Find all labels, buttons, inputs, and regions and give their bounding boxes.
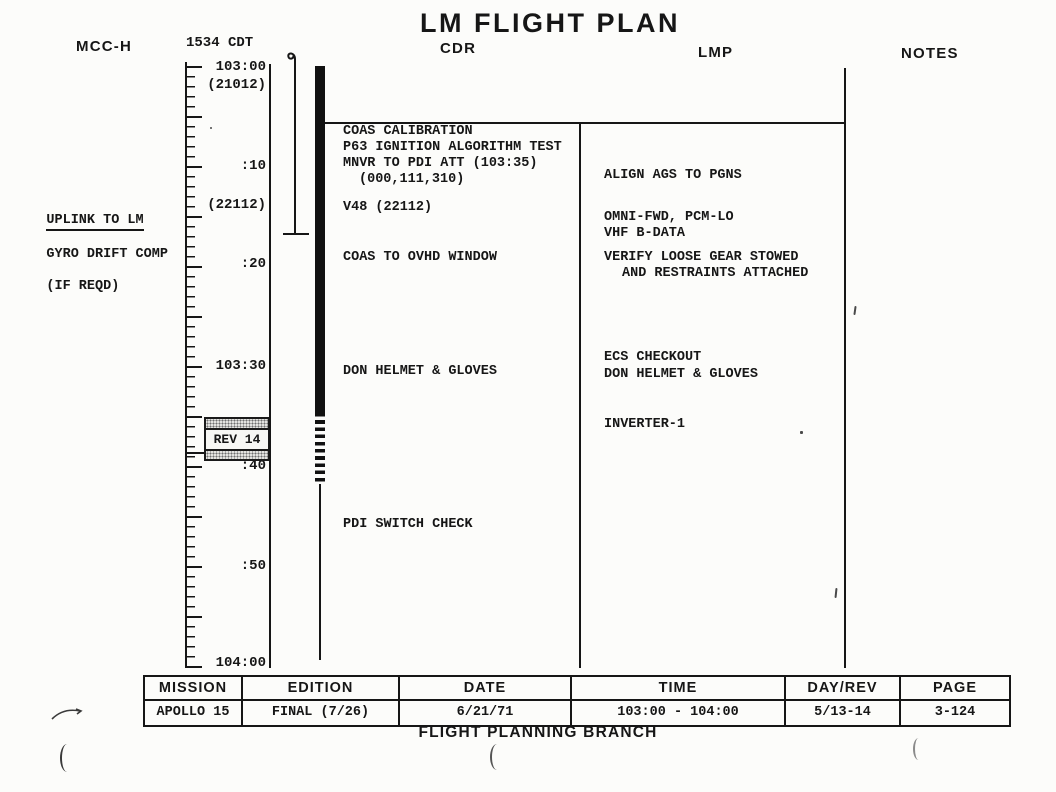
uplink-bracket-end: [283, 233, 309, 235]
lmp-activity: VHF B-DATA: [604, 226, 685, 242]
time-label-10330: 103:30: [166, 358, 266, 374]
flight-plan-page: LM FLIGHT PLAN MCC-H 1534 CDT CDR LMP NO…: [0, 0, 1056, 792]
scan-paren-mark: [913, 738, 924, 760]
cdr-activity: DON HELMET & GLOVES: [343, 364, 497, 380]
value-time: 103:00 - 104:00: [571, 700, 785, 726]
uplink-bracket-line: [294, 68, 296, 235]
activity-bar-solid: [315, 66, 325, 413]
cdr-activity: COAS CALIBRATION: [343, 124, 473, 140]
value-mission: APOLLO 15: [144, 700, 242, 726]
cdr-activity: PDI SWITCH CHECK: [343, 517, 473, 533]
time-label-21012: (21012): [166, 77, 266, 93]
lmp-activity: ALIGN AGS TO PGNS: [604, 168, 742, 184]
value-edition: FINAL (7/26): [242, 700, 399, 726]
activity-bar-dashed: [315, 413, 325, 484]
scan-speck: [853, 306, 856, 315]
value-date: 6/21/71: [399, 700, 571, 726]
column-header-mcc: MCC-H: [76, 38, 132, 55]
cdr-activity: COAS TO OVHD WINDOW: [343, 250, 497, 266]
scan-speck: [834, 588, 837, 598]
table-header-row: MISSION EDITION DATE TIME DAY/REV PAGE: [144, 676, 1010, 700]
table-value-row: APOLLO 15 FINAL (7/26) 6/21/71 103:00 - …: [144, 700, 1010, 726]
footer-branch-label: FLIGHT PLANNING BRANCH: [408, 724, 668, 742]
header-dayrev: DAY/REV: [785, 676, 900, 700]
cdr-activity: P63 IGNITION ALGORITHM TEST: [343, 140, 562, 156]
column-header-cdr: CDR: [440, 40, 476, 57]
column-header-notes: NOTES: [901, 45, 959, 62]
timeline-right-rule: [269, 64, 271, 668]
value-dayrev: 5/13-14: [785, 700, 900, 726]
header-page: PAGE: [900, 676, 1010, 700]
cdr-activity: (000,111,310): [359, 172, 464, 188]
scan-paren-mark: [60, 744, 74, 772]
lmp-activity: INVERTER-1: [604, 417, 685, 433]
time-label-10: :10: [166, 158, 266, 174]
header-mission: MISSION: [144, 676, 242, 700]
scan-squiggle-mark: [50, 706, 90, 722]
rev-badge: REV 14: [204, 417, 270, 461]
uplink-note-line2: GYRO DRIFT COMP: [46, 247, 168, 262]
time-label-10300: 103:00: [166, 59, 266, 75]
scan-speck: [210, 127, 212, 129]
value-page: 3-124: [900, 700, 1010, 726]
lmp-activity: DON HELMET & GLOVES: [604, 367, 758, 383]
lmp-activity: OMNI-FWD, PCM-LO: [604, 210, 734, 226]
lmp-notes-divider: [844, 68, 846, 668]
time-label-50: :50: [166, 558, 266, 574]
mission-info-table: MISSION EDITION DATE TIME DAY/REV PAGE A…: [143, 675, 1011, 727]
header-time: TIME: [571, 676, 785, 700]
header-date: DATE: [399, 676, 571, 700]
cdr-lmp-divider: [579, 123, 581, 668]
uplink-note: UPLINK TO LM GYRO DRIFT COMP (IF REQD): [14, 197, 168, 311]
uplink-note-line1: UPLINK TO LM: [46, 213, 143, 231]
header-edition: EDITION: [242, 676, 399, 700]
lmp-activity: VERIFY LOOSE GEAR STOWED: [604, 250, 798, 266]
activity-bar-thin: [319, 484, 321, 660]
lmp-activity: ECS CHECKOUT: [604, 350, 701, 366]
time-label-20: :20: [166, 256, 266, 272]
cdr-activity: V48 (22112): [343, 200, 432, 216]
time-label-22112: (22112): [166, 197, 266, 213]
rev-badge-label: REV 14: [206, 428, 268, 451]
time-label-10400: 104:00: [166, 655, 266, 671]
uplink-note-line3: (IF REQD): [46, 279, 119, 294]
lmp-activity: AND RESTRAINTS ATTACHED: [622, 266, 808, 282]
column-header-lmp: LMP: [698, 44, 733, 61]
bracket-hook-icon: [285, 50, 307, 70]
page-title: LM FLIGHT PLAN: [420, 8, 680, 39]
cdr-activity: MNVR TO PDI ATT (103:35): [343, 156, 537, 172]
scan-speck: [800, 431, 803, 434]
clock-time: 1534 CDT: [186, 35, 253, 51]
rev-boundary-tick: [186, 452, 206, 454]
scan-paren-mark: [490, 744, 504, 770]
